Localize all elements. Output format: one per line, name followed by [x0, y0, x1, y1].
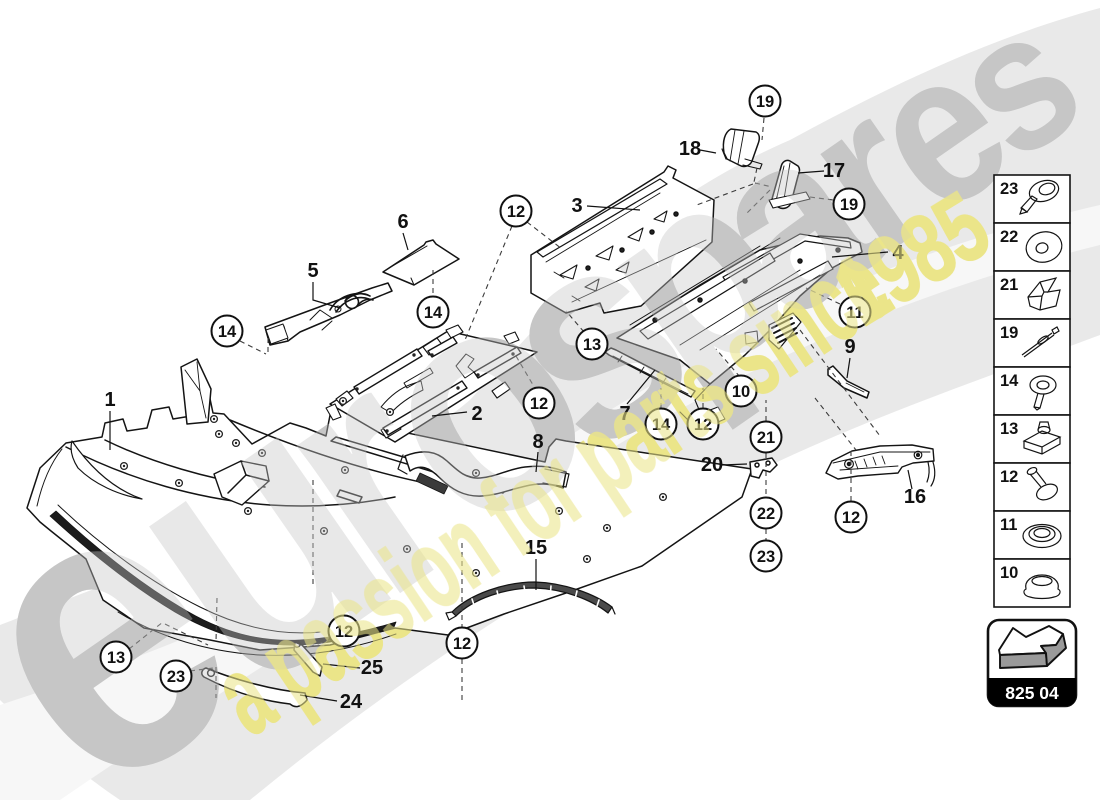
svg-text:13: 13: [583, 336, 601, 354]
svg-text:19: 19: [756, 93, 774, 111]
svg-text:12: 12: [842, 509, 860, 527]
svg-text:13: 13: [1000, 420, 1018, 438]
svg-text:23: 23: [757, 548, 775, 566]
svg-text:12: 12: [530, 395, 548, 413]
svg-text:16: 16: [904, 486, 926, 508]
svg-text:18: 18: [679, 138, 701, 160]
svg-text:1: 1: [104, 389, 115, 411]
svg-text:23: 23: [167, 668, 185, 686]
svg-text:2: 2: [471, 403, 482, 425]
svg-text:14: 14: [1000, 372, 1019, 390]
svg-text:3: 3: [571, 195, 582, 217]
svg-text:17: 17: [823, 160, 845, 182]
svg-text:19: 19: [840, 196, 858, 214]
svg-text:12: 12: [453, 635, 471, 653]
svg-text:22: 22: [757, 505, 775, 523]
svg-text:825 04: 825 04: [1005, 683, 1059, 703]
svg-text:14: 14: [424, 304, 443, 322]
svg-text:5: 5: [307, 260, 318, 282]
svg-text:6: 6: [397, 211, 408, 233]
svg-text:12: 12: [1000, 468, 1018, 486]
svg-text:10: 10: [1000, 564, 1018, 582]
svg-text:21: 21: [1000, 276, 1018, 294]
svg-text:13: 13: [107, 649, 125, 667]
svg-text:11: 11: [1000, 516, 1017, 534]
svg-text:12: 12: [507, 203, 525, 221]
svg-text:19: 19: [1000, 324, 1018, 342]
svg-text:14: 14: [218, 323, 237, 341]
svg-text:23: 23: [1000, 180, 1018, 198]
svg-text:22: 22: [1000, 228, 1018, 246]
svg-text:21: 21: [757, 429, 775, 447]
